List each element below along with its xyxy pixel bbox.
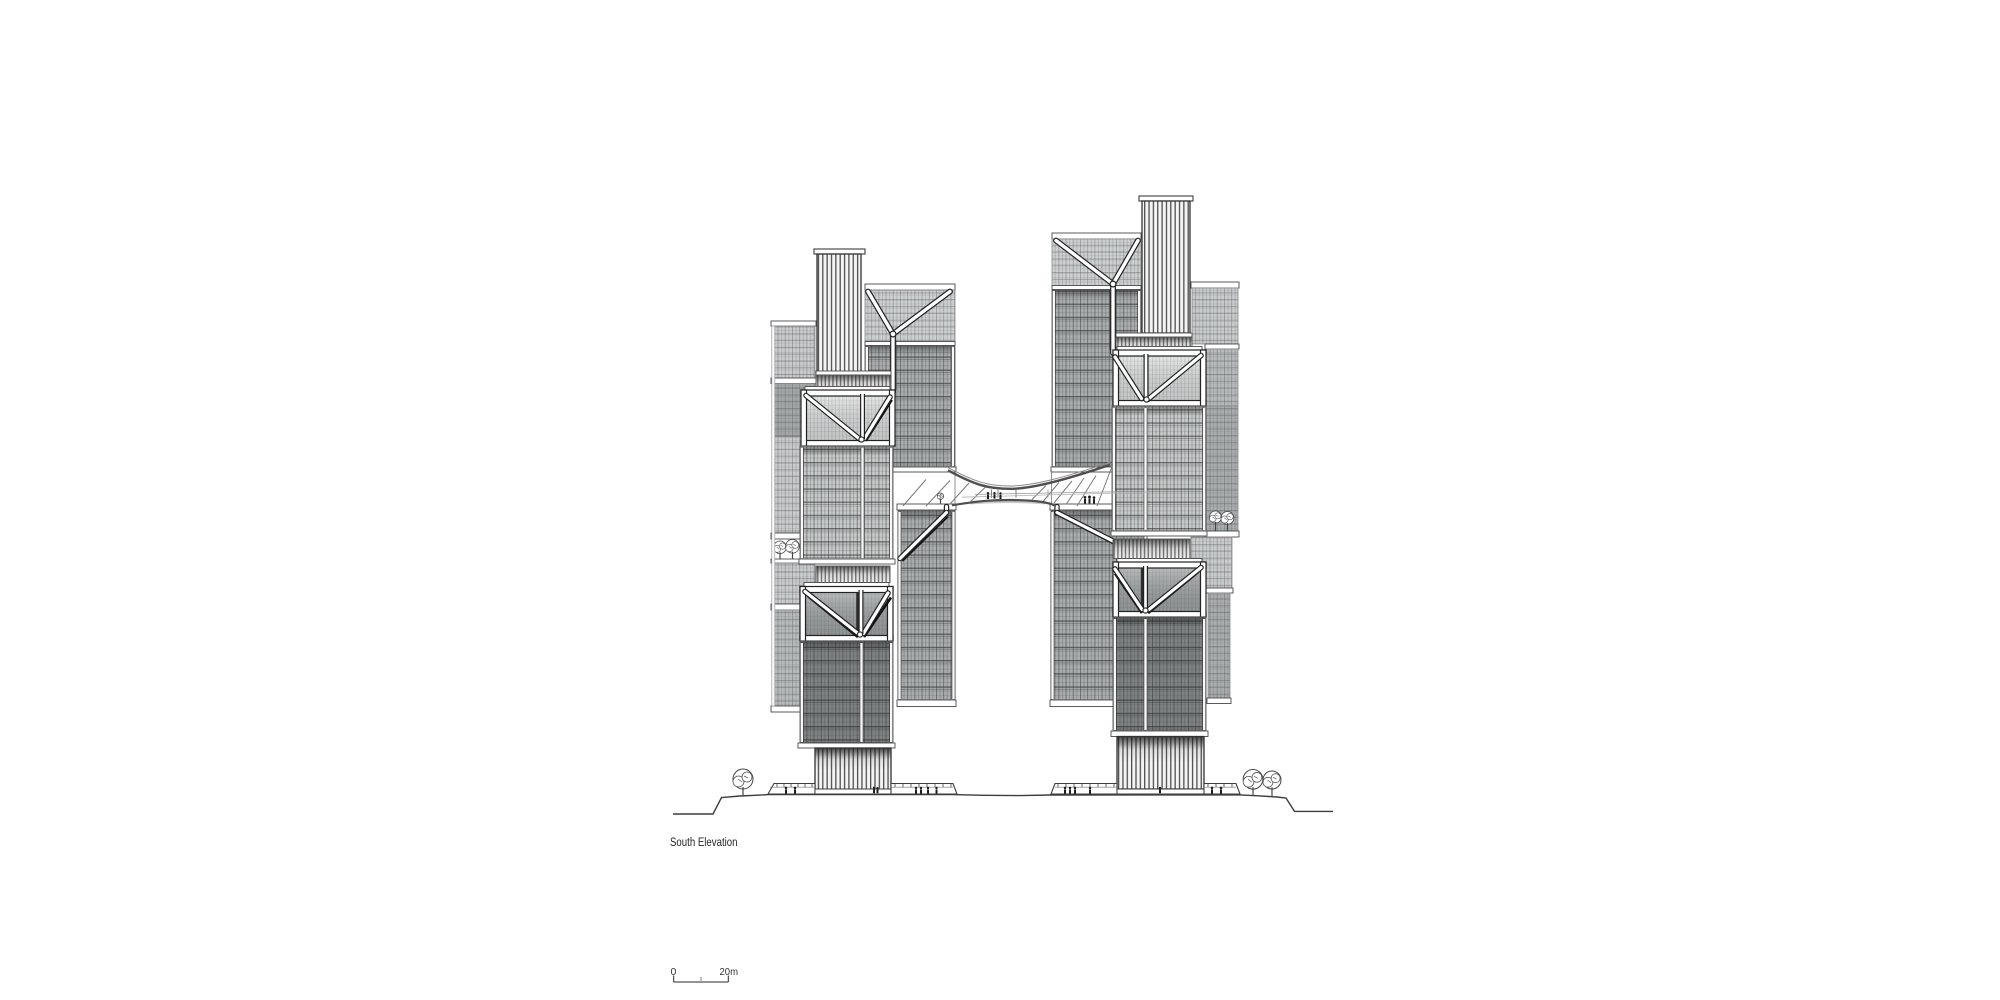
svg-text:South Elevation: South Elevation [670, 835, 738, 849]
svg-text:0: 0 [671, 966, 677, 978]
svg-text:20m: 20m [720, 966, 739, 978]
